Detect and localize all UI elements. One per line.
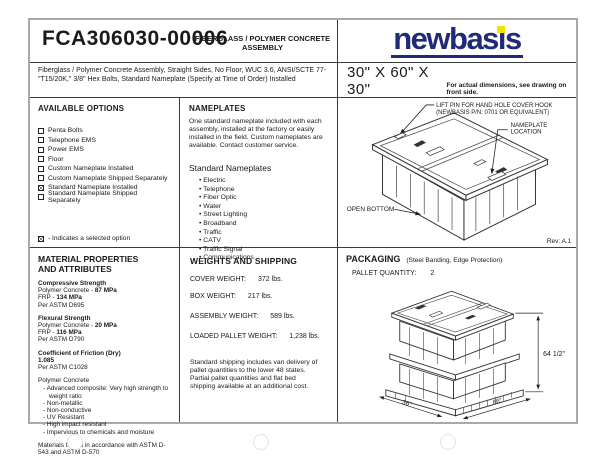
available-options-section: AVAILABLE OPTIONS Penta Bolts Telephone … [30, 98, 179, 247]
nameplate-item: Fiber Optic [189, 194, 328, 203]
nameplate-item: Street Lighting [189, 211, 328, 220]
pallet-stack-drawing: 64 1/2" 66" 36" [338, 280, 579, 420]
option-label: Custom Nameplate Shipped Separately [48, 175, 167, 182]
weight-value: 589 lbs. [270, 313, 295, 320]
materials-tested-note: Materials tested in accordance with ASTM… [38, 442, 171, 456]
nameplate-callout-line1: NAMEPLATE [511, 122, 548, 129]
attribute-item: Non-metallic [38, 400, 171, 407]
weight-row: ASSEMBLY WEIGHT:589 lbs. [190, 313, 327, 320]
weight-label: BOX WEIGHT: [190, 293, 236, 300]
polymer-concrete-block: Polymer Concrete Advanced composite: Ver… [38, 377, 171, 436]
weight-value: 372 lbs. [258, 276, 283, 283]
attribute-item: High impact resistant [38, 421, 171, 428]
checkbox-icon [38, 156, 44, 162]
option-item: Standard Nameplate Shipped Separately [38, 193, 171, 203]
option-item: Custom Nameplate Installed [38, 164, 171, 174]
shipping-note: Standard shipping includes van delivery … [190, 359, 322, 391]
astm-reference: Per ASTM D790 [38, 336, 171, 343]
selected-option-legend: - Indicates a selected option [38, 235, 130, 242]
weights-shipping-section: WEIGHTS AND SHIPPING COVER WEIGHT:372 lb… [180, 248, 337, 422]
property-value: 134 MPa [56, 294, 82, 301]
property-line: Polymer Concrete - 87 MPa [38, 287, 171, 294]
property-label: Polymer Concrete - [38, 322, 95, 329]
binder-hole [67, 434, 83, 450]
open-bottom-callout: OPEN BOTTOM [347, 206, 394, 213]
section-title: AVAILABLE OPTIONS [38, 104, 171, 113]
lift-pin-callout-line1: LIFT PIN FOR HAND HOLE COVER HOOK [436, 103, 552, 109]
nameplate-item: Telephone [189, 186, 328, 195]
options-list: Penta Bolts Telephone EMS Power EMS Floo… [38, 126, 171, 202]
nameplate-callout-line2: LOCATION [511, 129, 542, 136]
polymer-attributes-list: Advanced composite: Very high strength t… [38, 385, 171, 435]
material-properties-section: MATERIAL PROPERTIES AND ATTRIBUTES Compr… [30, 248, 179, 422]
checkbox-icon [38, 128, 44, 134]
property-line: FRP - 134 MPa [38, 294, 171, 301]
astm-reference: Per ASTM D695 [38, 302, 171, 309]
property-value: 20 MPa [95, 322, 117, 329]
attribute-item: UV Resistant [38, 414, 171, 421]
weight-label: COVER WEIGHT: [190, 276, 246, 283]
nameplates-section: NAMEPLATES One standard nameplate includ… [180, 98, 337, 247]
property-heading: Coefficient of Friction (Dry) [38, 350, 171, 357]
packaging-header: PACKAGING (Steel Banding, Edge Protectio… [346, 254, 571, 264]
weight-label: ASSEMBLY WEIGHT: [190, 313, 258, 320]
pallet-quantity-row: PALLET QUANTITY: 2 [352, 270, 571, 277]
property-line: FRP - 116 MPa [38, 329, 171, 336]
product-description: Fiberglass / Polymer Concrete Assembly, … [38, 66, 330, 84]
size-cell: 30" X 60" X 30" For actual dimensions, s… [347, 64, 575, 98]
option-label: Penta Bolts [48, 127, 83, 134]
property-label: FRP - [38, 329, 56, 336]
size-note: For actual dimensions, see drawing on fr… [446, 82, 575, 98]
weight-row: LOADED PALLET WEIGHT:1,238 lbs. [190, 333, 327, 340]
nameplates-list-title: Standard Nameplates [189, 163, 328, 173]
option-label: Custom Nameplate Installed [48, 165, 133, 172]
option-item: Telephone EMS [38, 136, 171, 146]
property-heading: Compressive Strength [38, 280, 171, 287]
brand-logo-yellow-dot [497, 26, 505, 33]
nameplate-item: CATV [189, 237, 328, 246]
property-value: 116 MPa [56, 329, 81, 336]
pallet-height-dimension: 64 1/2" [543, 351, 565, 358]
vault-diagram: LIFT PIN FOR HAND HOLE COVER HOOK (NEWBA… [338, 98, 579, 247]
property-label: FRP - [38, 294, 56, 301]
property-heading: Flexural Strength [38, 315, 171, 322]
property-value: 87 MPa [95, 287, 117, 294]
weight-value: 1,238 lbs. [289, 333, 319, 340]
packaging-subtitle: (Steel Banding, Edge Protection) [406, 257, 502, 264]
checked-checkbox-icon [38, 236, 44, 242]
binder-hole [440, 434, 456, 450]
section-title-line2: AND ATTRIBUTES [38, 264, 171, 274]
lift-pin-callout-line2: (NEWBASIS P/N: 0701 OR EQUIVALENT) [436, 110, 549, 116]
property-heading: Polymer Concrete [38, 377, 171, 384]
astm-reference: Per ASTM C1028 [38, 364, 171, 371]
flexural-strength-block: Flexural Strength Polymer Concrete - 20 … [38, 315, 171, 344]
size-text: 30" X 60" X 30" [347, 64, 439, 98]
section-title: MATERIAL PROPERTIES AND ATTRIBUTES [38, 254, 171, 274]
option-label: Power EMS [48, 146, 84, 153]
product-title: FIBERGLASS / POLYMER CONCRETE ASSEMBLY [190, 34, 335, 52]
weight-row: BOX WEIGHT:217 lbs. [190, 293, 327, 300]
nameplate-item: Electric [189, 177, 328, 186]
checkbox-icon [38, 194, 44, 200]
property-line: Polymer Concrete - 20 MPa [38, 322, 171, 329]
vault-isometric-drawing: LIFT PIN FOR HAND HOLE COVER HOOK (NEWBA… [338, 98, 579, 247]
spec-sheet: FCA306030-00006 FIBERGLASS / POLYMER CON… [28, 18, 578, 424]
option-label: Telephone EMS [48, 137, 96, 144]
divider [30, 62, 576, 63]
weight-row: COVER WEIGHT:372 lbs. [190, 276, 327, 283]
property-label: Polymer Concrete - [38, 287, 95, 294]
option-item: Penta Bolts [38, 126, 171, 136]
legend-text: - Indicates a selected option [48, 235, 130, 242]
pallet-quantity-label: PALLET QUANTITY: [352, 270, 416, 277]
compressive-strength-block: Compressive Strength Polymer Concrete - … [38, 280, 171, 309]
nameplate-item: Traffic [189, 229, 328, 238]
option-label: Floor [48, 156, 64, 163]
checkbox-icon [38, 147, 44, 153]
packaging-section: PACKAGING (Steel Banding, Edge Protectio… [338, 248, 579, 422]
attribute-item: Non-conductive [38, 407, 171, 414]
revision-label: Rev: A.1 [547, 238, 572, 245]
nameplate-item: Water [189, 203, 328, 212]
option-item: Floor [38, 155, 171, 165]
attribute-item: Advanced composite: Very high strength t… [38, 385, 171, 399]
section-title-line1: MATERIAL PROPERTIES [38, 254, 171, 264]
weight-label: LOADED PALLET WEIGHT: [190, 333, 277, 340]
checkbox-icon [38, 185, 44, 191]
friction-block: Coefficient of Friction (Dry) 1.085 Per … [38, 350, 171, 372]
weight-value: 217 lbs. [248, 293, 273, 300]
checkbox-icon [38, 175, 44, 181]
section-title: NAMEPLATES [189, 104, 328, 113]
option-item: Custom Nameplate Shipped Separately [38, 174, 171, 184]
nameplate-item: Broadband [189, 220, 328, 229]
checkbox-icon [38, 166, 44, 172]
nameplates-body: One standard nameplate included with eac… [189, 118, 328, 150]
option-item: Power EMS [38, 145, 171, 155]
attribute-item: Impervious to chemicals and moisture [38, 429, 171, 436]
pallet-quantity-value: 2 [430, 270, 434, 277]
section-title: PACKAGING [346, 254, 400, 264]
brand-logo: newbasis [338, 20, 576, 62]
section-title: WEIGHTS AND SHIPPING [190, 256, 327, 266]
binder-hole [253, 434, 269, 450]
option-label: Standard Nameplate Shipped Separately [48, 190, 171, 204]
checkbox-icon [38, 137, 44, 143]
property-value: 1.085 [38, 357, 171, 364]
